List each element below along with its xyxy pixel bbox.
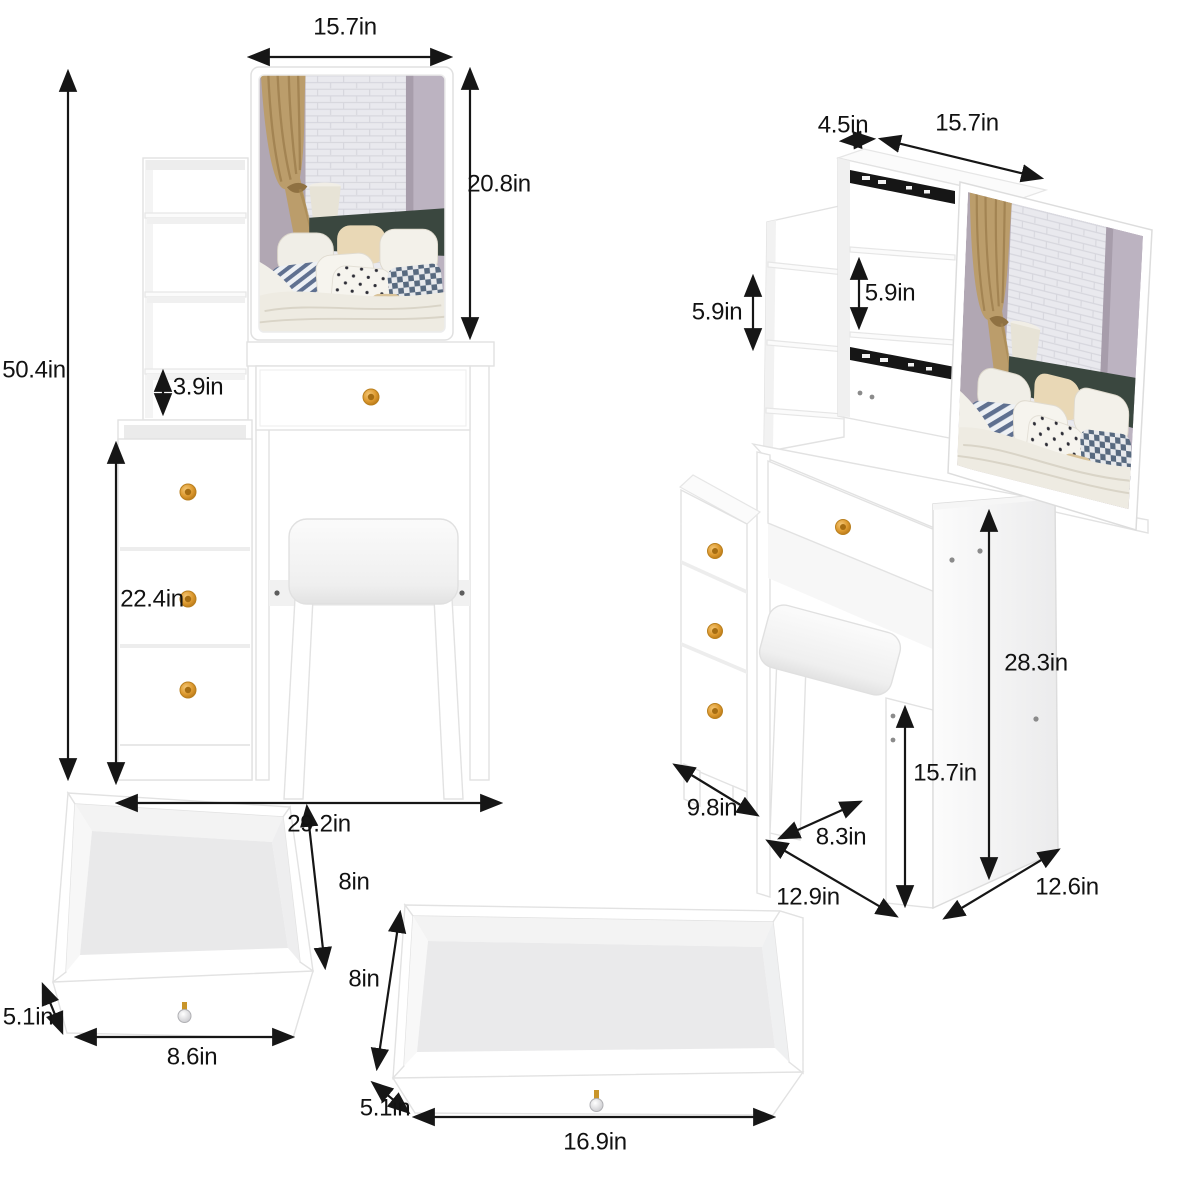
small-drawer-height-label: 5.1in: [3, 1004, 54, 1029]
side-stool-height-label: 15.7in: [913, 760, 977, 785]
product-dimension-diagram: 15.7in 20.8in 50.4in 3.9in 22.4in 29.2in…: [0, 0, 1200, 1200]
screw-icon: [1033, 716, 1038, 721]
side-top-depth-label: 4.5in: [818, 112, 869, 137]
front-mirror-width-label: 15.7in: [313, 14, 377, 39]
screw-icon: [891, 714, 896, 719]
front-shelf-gap-label: 3.9in: [173, 374, 224, 399]
screw-icon: [870, 395, 875, 400]
front-total-width-label: 29.2in: [287, 811, 351, 836]
side-small-shelf: [764, 205, 844, 452]
side-table-height-label: 28.3in: [1004, 650, 1068, 675]
front-desk-top: [247, 342, 494, 366]
screw-icon: [949, 557, 954, 562]
small-drawer-view: [53, 793, 313, 1038]
side-stool: [756, 601, 933, 908]
screw-icon: [459, 590, 464, 595]
side-view: [680, 149, 1152, 908]
side-panel: [933, 494, 1058, 908]
front-stool-left-leg: [284, 598, 313, 799]
front-mirror-height-label: 20.8in: [467, 171, 531, 196]
large-drawer-depth-label: 8in: [348, 966, 379, 991]
dimension-arrow: [842, 139, 873, 141]
small-drawer-width-label: 8.6in: [167, 1044, 218, 1069]
side-mirror-photo: [957, 192, 1144, 510]
large-drawer-height-label: 5.1in: [360, 1095, 411, 1120]
front-desk-side-panel: [470, 366, 489, 780]
hutch-shelf-spacing-label: 5.9in: [865, 280, 916, 305]
front-stool-cushion: [289, 519, 458, 604]
side-stool-depth-label: 8.3in: [816, 824, 867, 849]
screw-icon: [858, 391, 863, 396]
side-drawer-cabinet: [680, 475, 760, 809]
front-stool: [284, 519, 463, 799]
screw-icon: [977, 548, 982, 553]
side-mirror: [948, 182, 1152, 530]
side-mirror-width-label: 15.7in: [935, 110, 999, 135]
side-stool-left-leg: [770, 657, 806, 840]
screw-icon: [891, 738, 896, 743]
front-stool-right-leg: [434, 598, 463, 799]
side-stool-right-leg: [886, 698, 933, 908]
side-panel-depth-label: 12.6in: [1035, 874, 1099, 899]
large-drawer-view: [393, 905, 803, 1115]
front-mirror-photo: [259, 75, 446, 332]
large-drawer-width-label: 16.9in: [563, 1129, 627, 1154]
screw-icon: [274, 590, 279, 595]
side-tabletop-depth-label: 12.9in: [776, 884, 840, 909]
front-cabinet-height-label: 22.4in: [120, 586, 184, 611]
side-shelf-spacing-label: 5.9in: [692, 299, 743, 324]
front-total-height-label: 50.4in: [2, 357, 66, 382]
front-view: [118, 67, 494, 799]
small-drawer-depth-label: 8in: [338, 869, 369, 894]
side-cabinet-depth-label: 9.8in: [687, 795, 738, 820]
front-mirror: [251, 67, 453, 340]
